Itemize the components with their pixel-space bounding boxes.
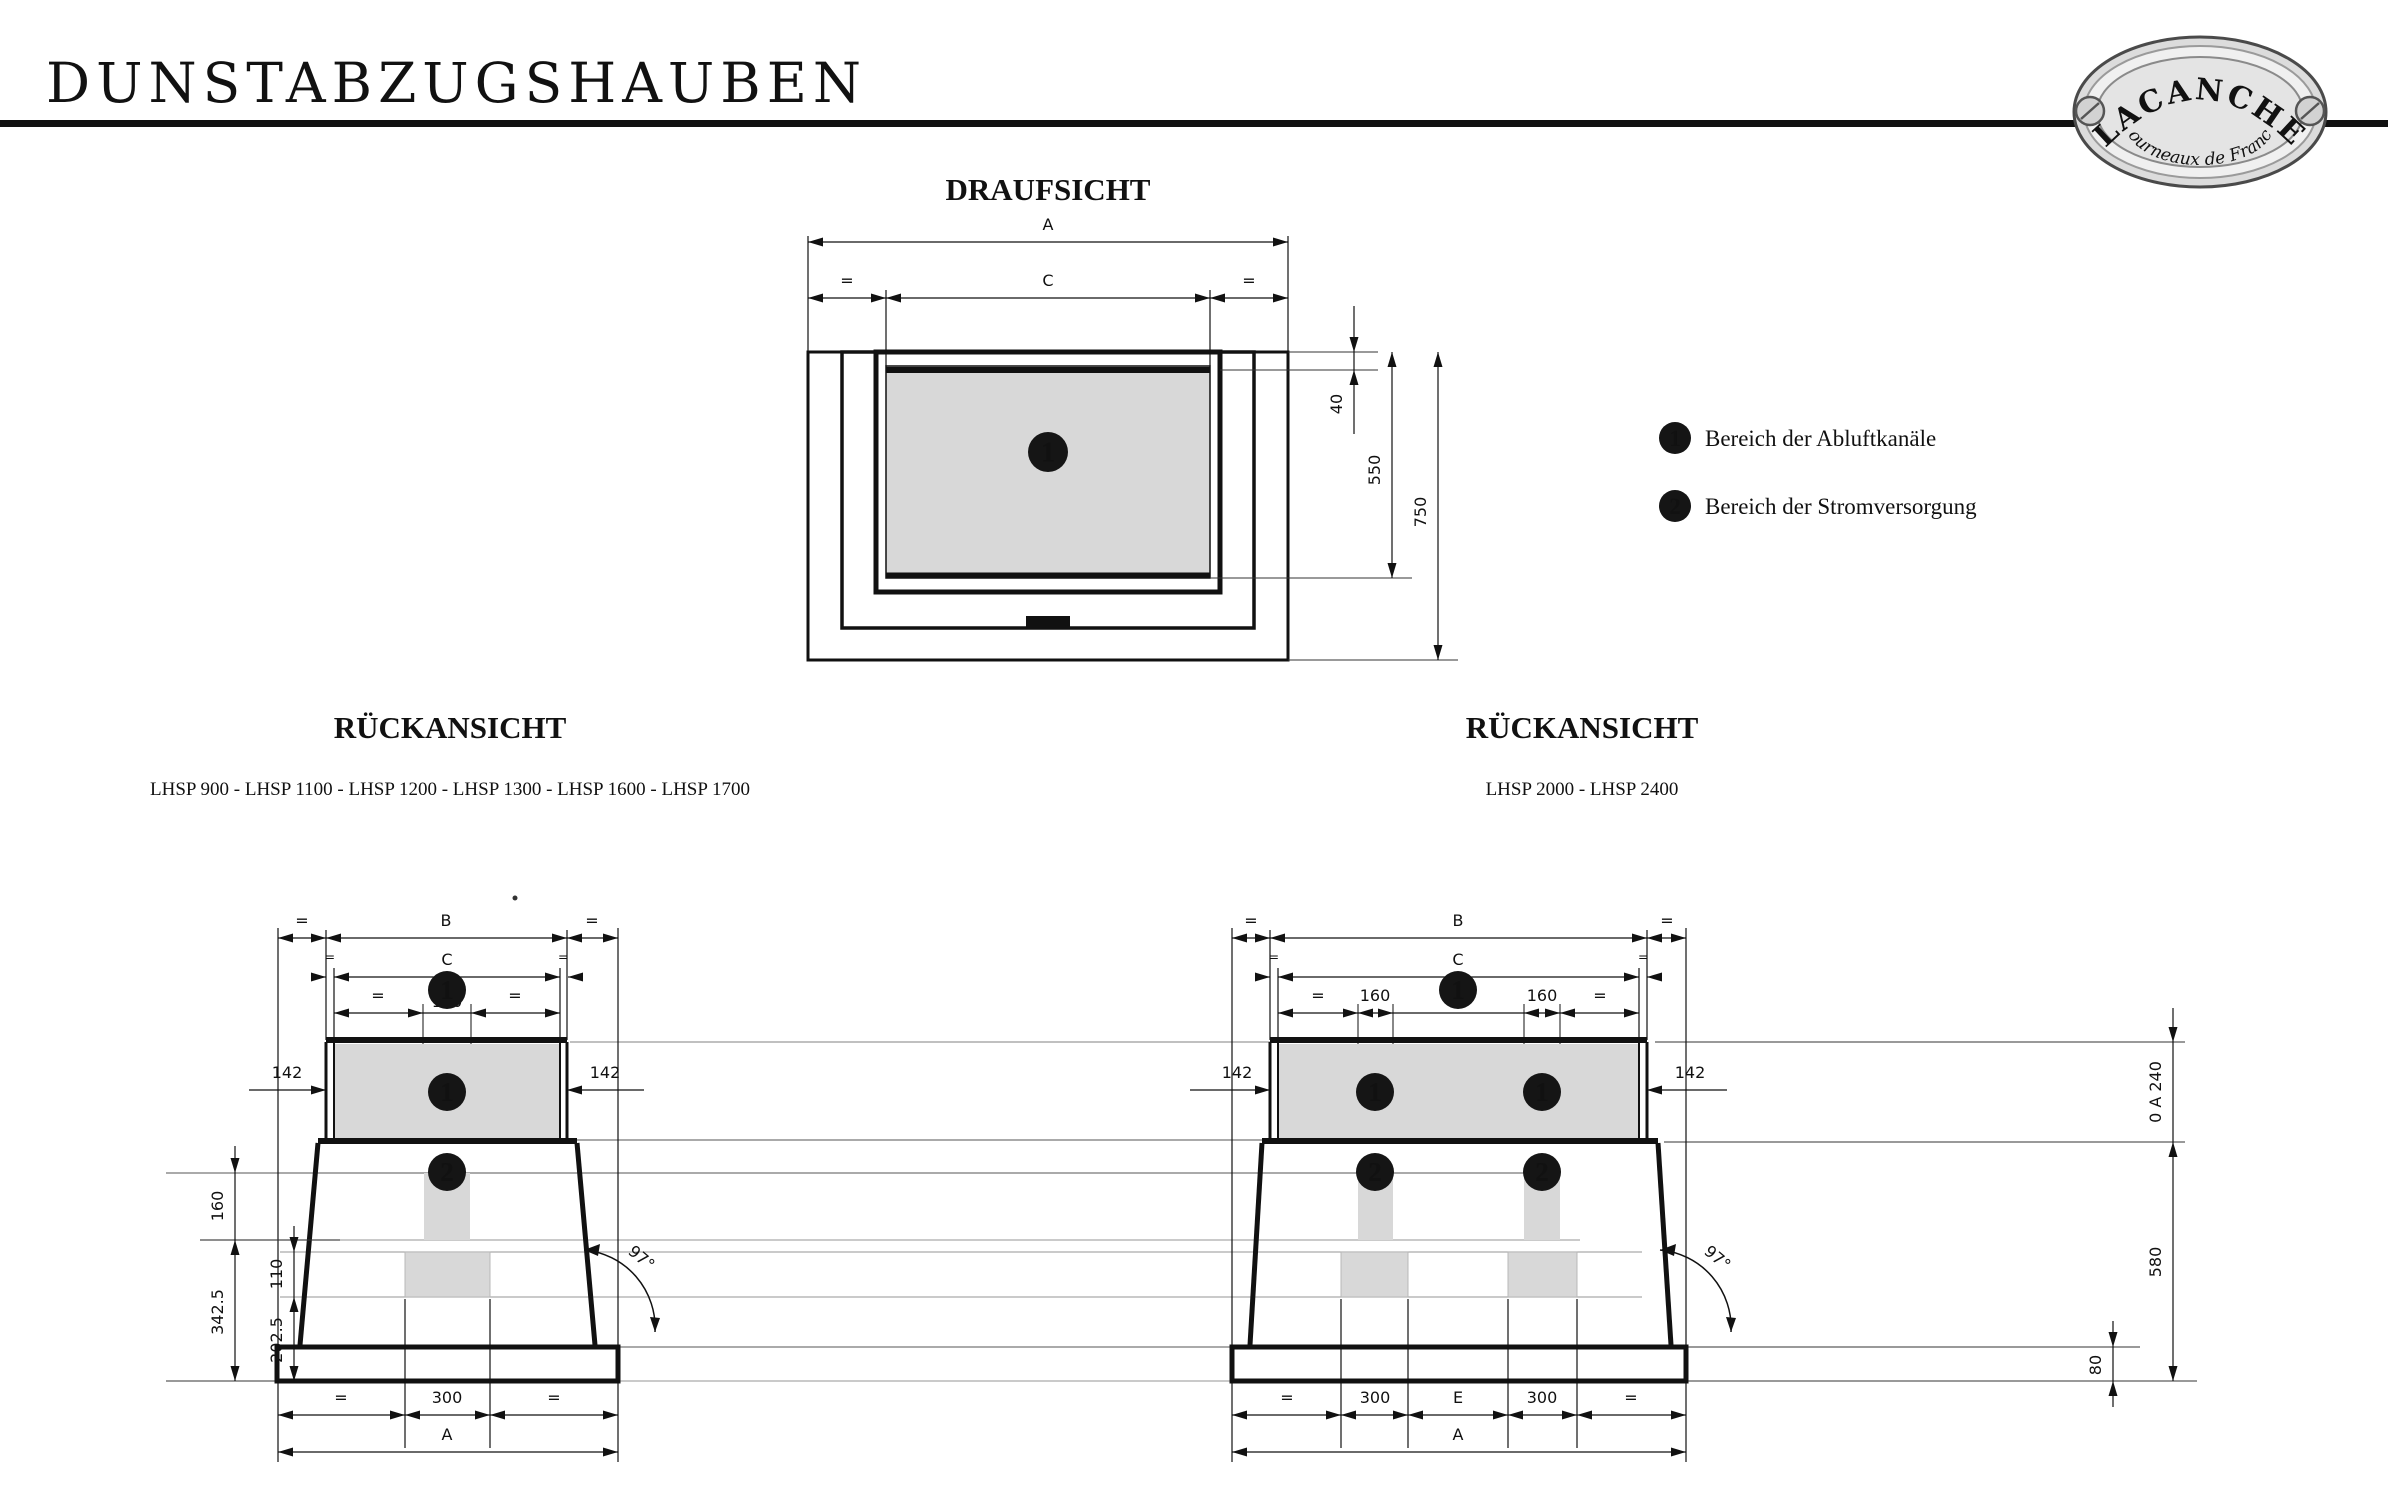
stray-dot bbox=[513, 896, 518, 901]
dimension-label: 580 bbox=[2146, 1247, 2165, 1278]
arrowhead-icon bbox=[390, 1411, 405, 1420]
dimension-label: 142 bbox=[272, 1063, 303, 1082]
arrowhead-icon bbox=[1624, 1009, 1639, 1018]
arrowhead-icon bbox=[1326, 1411, 1341, 1420]
arrowhead-icon bbox=[552, 934, 567, 943]
chimney-opening bbox=[1341, 1252, 1408, 1297]
chimney-opening bbox=[405, 1252, 490, 1297]
arrowhead-icon bbox=[568, 973, 583, 982]
dimension-label: = bbox=[585, 911, 598, 930]
arrowhead-icon bbox=[1671, 1448, 1686, 1457]
arrowhead-icon bbox=[1232, 934, 1247, 943]
dimension-label: = bbox=[1280, 1388, 1293, 1407]
arrowhead-icon bbox=[1210, 294, 1225, 303]
arrowhead-icon bbox=[471, 1009, 486, 1018]
arrowhead-icon bbox=[567, 1086, 582, 1095]
arrowhead-icon bbox=[2169, 1366, 2178, 1381]
arrowhead-icon bbox=[2109, 1332, 2118, 1347]
arrowhead-icon bbox=[1647, 1086, 1662, 1095]
arrowhead-icon bbox=[1624, 973, 1639, 982]
legend-label-strom: Bereich der Stromversorgung bbox=[1705, 494, 1977, 519]
technical-drawing: DUNSTABZUGSHAUBEN LACANCHE Fourneaux de … bbox=[0, 0, 2388, 1489]
hood-base bbox=[277, 1347, 618, 1381]
arrowhead-icon bbox=[1647, 973, 1662, 982]
dimension-label: = bbox=[334, 1388, 347, 1407]
arrowhead-icon bbox=[1232, 1411, 1247, 1420]
dimension-label: 300 bbox=[1527, 1388, 1558, 1407]
arrowhead-icon bbox=[311, 934, 326, 943]
area-badge-number: 1 bbox=[1368, 1076, 1382, 1107]
arrowhead-icon bbox=[886, 294, 901, 303]
area-badge-number: 1 bbox=[1041, 437, 1056, 469]
dimension-label: A bbox=[1043, 215, 1054, 234]
arrowhead-icon bbox=[1388, 352, 1397, 367]
area-badge-number: 2 bbox=[440, 1156, 454, 1187]
arrowhead-icon bbox=[278, 934, 293, 943]
arrowhead-icon bbox=[1270, 934, 1285, 943]
arrowhead-icon bbox=[1273, 294, 1288, 303]
right-view-title: RÜCKANSICHT bbox=[1466, 710, 1699, 745]
arrowhead-icon bbox=[1408, 1411, 1423, 1420]
page-title: DUNSTABZUGSHAUBEN bbox=[46, 51, 867, 115]
arrowhead-icon bbox=[1434, 645, 1443, 660]
dimension-label: = bbox=[1244, 911, 1257, 930]
arrowhead-icon bbox=[475, 1411, 490, 1420]
arrowhead-icon bbox=[405, 1411, 420, 1420]
legend-label-abluft: Bereich der Abluftkanäle bbox=[1705, 426, 1936, 451]
header-rule bbox=[0, 120, 2388, 127]
duct-band bbox=[1278, 1044, 1639, 1138]
dimension-label: = bbox=[558, 950, 568, 964]
arrowhead-icon bbox=[808, 294, 823, 303]
dimension-label: C bbox=[441, 950, 452, 969]
arrowhead-icon bbox=[2109, 1381, 2118, 1396]
arrowhead-icon bbox=[1493, 1411, 1508, 1420]
dimension-label: 110 bbox=[267, 1259, 286, 1290]
arrowhead-icon bbox=[545, 1009, 560, 1018]
arrowhead-icon bbox=[1255, 934, 1270, 943]
dimension-label: 160 bbox=[208, 1191, 227, 1222]
arrowhead-icon bbox=[603, 934, 618, 943]
hood-side bbox=[1658, 1143, 1671, 1345]
dimension-label: = bbox=[1311, 986, 1324, 1005]
arrowhead-icon bbox=[1255, 973, 1270, 982]
right-view-models: LHSP 2000 - LHSP 2400 bbox=[1486, 779, 1679, 800]
arrowhead-icon bbox=[490, 1411, 505, 1420]
arrowhead-icon bbox=[650, 1317, 660, 1332]
area-badge-number: 2 bbox=[1535, 1156, 1549, 1187]
arrowhead-icon bbox=[808, 238, 823, 247]
arrowhead-icon bbox=[1508, 1411, 1523, 1420]
dimension-label: 550 bbox=[1365, 455, 1384, 486]
dimension-label: = bbox=[325, 950, 335, 964]
arrowhead-icon bbox=[1278, 1009, 1293, 1018]
dimension-label: = bbox=[547, 1388, 560, 1407]
arrowhead-icon bbox=[1350, 370, 1359, 385]
dimension-label: = bbox=[1593, 986, 1606, 1005]
arrowhead-icon bbox=[567, 934, 582, 943]
dimension-label: 40 bbox=[1327, 394, 1346, 414]
arrowhead-icon bbox=[1560, 1009, 1575, 1018]
dimension-label: C bbox=[1042, 271, 1053, 290]
dimension-label: 80 bbox=[2086, 1355, 2105, 1375]
arrowhead-icon bbox=[545, 973, 560, 982]
arrowhead-icon bbox=[603, 1411, 618, 1420]
dimension-label: 142 bbox=[590, 1063, 621, 1082]
arrowhead-icon bbox=[231, 1366, 240, 1381]
dimension-label: = bbox=[840, 271, 853, 290]
arrowhead-icon bbox=[290, 1237, 299, 1252]
arrowhead-icon bbox=[1632, 934, 1647, 943]
dimension-label: = bbox=[295, 911, 308, 930]
area-badge-number: 1 bbox=[440, 1076, 454, 1107]
arrowhead-icon bbox=[2169, 1027, 2178, 1042]
area-badge-number: 1 bbox=[440, 974, 454, 1005]
dimension-label: 160 bbox=[1360, 986, 1391, 1005]
dimension-label: A bbox=[442, 1425, 453, 1444]
arrowhead-icon bbox=[1434, 352, 1443, 367]
dimension-label: 750 bbox=[1411, 497, 1430, 528]
arrowhead-icon bbox=[1393, 1411, 1408, 1420]
arrowhead-icon bbox=[1255, 1086, 1270, 1095]
arrowhead-icon bbox=[2169, 1142, 2178, 1157]
arrowhead-icon bbox=[871, 294, 886, 303]
arrowhead-icon bbox=[311, 1086, 326, 1095]
arrowhead-icon bbox=[1273, 238, 1288, 247]
legend-marker-2-number: 2 bbox=[1669, 494, 1681, 519]
area-badge-number: 1 bbox=[1451, 974, 1465, 1005]
dimension-label: 160 bbox=[1527, 986, 1558, 1005]
dimension-label: 202.5 bbox=[267, 1317, 286, 1363]
arrowhead-icon bbox=[1524, 1009, 1539, 1018]
dimension-label: B bbox=[1453, 911, 1464, 930]
arrowhead-icon bbox=[1378, 1009, 1393, 1018]
arrowhead-icon bbox=[1350, 337, 1359, 352]
dimension-label: = bbox=[1269, 950, 1279, 964]
dimension-label: 142 bbox=[1675, 1063, 1706, 1082]
arrowhead-icon bbox=[1647, 934, 1662, 943]
dimension-label: 300 bbox=[1360, 1388, 1391, 1407]
arrowhead-icon bbox=[1671, 1411, 1686, 1420]
arrowhead-icon bbox=[231, 1158, 240, 1173]
arrowhead-icon bbox=[1388, 563, 1397, 578]
chimney-opening bbox=[1508, 1252, 1577, 1297]
arrowhead-icon bbox=[1562, 1411, 1577, 1420]
arrowhead-icon bbox=[311, 973, 326, 982]
arrowhead-icon bbox=[231, 1240, 240, 1255]
arrowhead-icon bbox=[334, 973, 349, 982]
arrowhead-icon bbox=[278, 1448, 293, 1457]
dimension-label: = bbox=[1638, 950, 1648, 964]
dimension-label: E bbox=[1453, 1388, 1463, 1407]
arrowhead-icon bbox=[1726, 1317, 1736, 1332]
legend-marker-1-number: 1 bbox=[1669, 426, 1681, 451]
arrowhead-icon bbox=[603, 1448, 618, 1457]
arrowhead-icon bbox=[408, 1009, 423, 1018]
dimension-label: B bbox=[441, 911, 452, 930]
dimension-label: = bbox=[1660, 911, 1673, 930]
arrowhead-icon bbox=[1545, 1009, 1560, 1018]
arrowhead-icon bbox=[1341, 1411, 1356, 1420]
arrowhead-icon bbox=[334, 1009, 349, 1018]
hood-tab bbox=[1026, 616, 1070, 629]
hood-base bbox=[1232, 1347, 1686, 1381]
dimension-label: 142 bbox=[1222, 1063, 1253, 1082]
spec-sheet-page: DUNSTABZUGSHAUBEN LACANCHE Fourneaux de … bbox=[0, 0, 2388, 1489]
arrowhead-icon bbox=[326, 934, 341, 943]
dimension-label: = bbox=[508, 986, 521, 1005]
arrowhead-icon bbox=[1232, 1448, 1247, 1457]
arrowhead-icon bbox=[1358, 1009, 1373, 1018]
arrowhead-icon bbox=[278, 1411, 293, 1420]
dimension-label: 300 bbox=[432, 1388, 463, 1407]
drawing-views: A=C=405507501=B=C===160=142142160342.511… bbox=[166, 215, 2197, 1462]
arrowhead-icon bbox=[1577, 1411, 1592, 1420]
dimension-label: 342.5 bbox=[208, 1289, 227, 1335]
area-badge-number: 2 bbox=[1368, 1156, 1382, 1187]
left-view-models: LHSP 900 - LHSP 1100 - LHSP 1200 - LHSP … bbox=[150, 779, 750, 800]
dimension-label: C bbox=[1452, 950, 1463, 969]
dimension-label: 0 A 240 bbox=[2146, 1061, 2165, 1123]
arrowhead-icon bbox=[1278, 973, 1293, 982]
dimension-label: = bbox=[1624, 1388, 1637, 1407]
dimension-label: = bbox=[371, 986, 384, 1005]
dimension-label: = bbox=[1242, 271, 1255, 290]
top-view-title: DRAUFSICHT bbox=[946, 172, 1151, 207]
left-view-title: RÜCKANSICHT bbox=[334, 710, 567, 745]
arrowhead-icon bbox=[1671, 934, 1686, 943]
area-badge-number: 1 bbox=[1535, 1076, 1549, 1107]
legend: 1 Bereich der Abluftkanäle 2 Bereich der… bbox=[1659, 422, 1977, 522]
arrowhead-icon bbox=[290, 1297, 299, 1312]
arrowhead-icon bbox=[1195, 294, 1210, 303]
dimension-label: A bbox=[1453, 1425, 1464, 1444]
arrowhead-icon bbox=[1343, 1009, 1358, 1018]
